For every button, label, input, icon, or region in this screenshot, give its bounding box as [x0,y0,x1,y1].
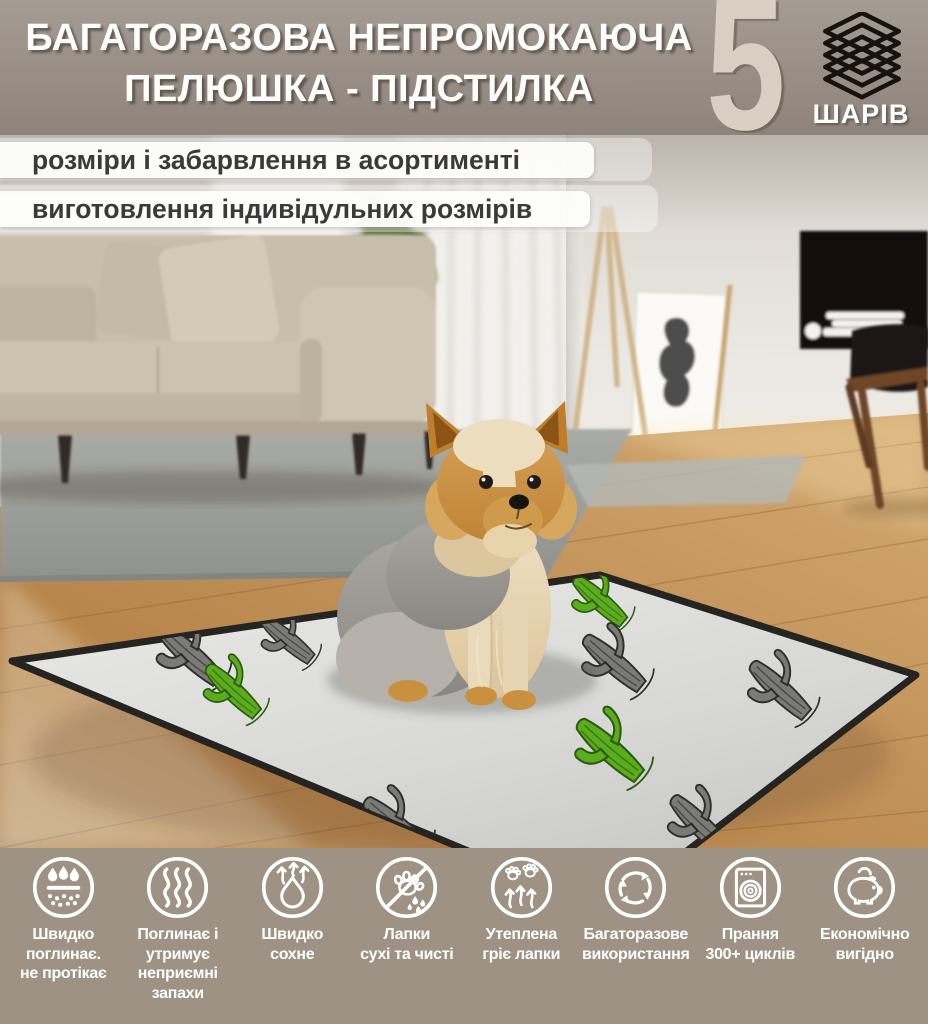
product-poster: БАГАТОРАЗОВА НЕПРОМОКАЮЧА ПЕЛЮШКА - ПІДС… [0,0,928,1024]
page-title: БАГАТОРАЗОВА НЕПРОМОКАЮЧА ПЕЛЮШКА - ПІДС… [0,13,718,115]
feature-label: Поглинає і утримує неприємні запахи [137,925,218,1003]
warm-paws-icon [489,855,554,920]
odor-waves-icon [145,855,210,920]
feature-warm-paws: Утеплена гріє лапки [464,855,579,1024]
banner-assortment: розміри і забарвлення в асортименті [0,142,594,178]
living-room-photo: розміри і забарвлення в асортименті виго… [0,135,928,848]
feature-label: Утеплена гріє лапки [482,925,560,964]
layers-label: ШАРІВ [802,99,920,130]
dog-eye [479,475,493,489]
feature-label: Швидко сохне [261,925,323,964]
feature-economy: Економічно вигідно [808,855,923,1024]
layers-count: 5 [706,0,785,135]
feature-label: Прання 300+ циклів [705,925,795,964]
scene-graphic [0,135,928,848]
pillow [157,233,281,357]
feature-dry-paws: Лапки сухі та чисті [350,855,465,1024]
banner-custom-sizes: виготовлення індивідульних розмірів [0,191,590,227]
no-wet-paws-icon [374,855,439,920]
header: БАГАТОРАЗОВА НЕПРОМОКАЮЧА ПЕЛЮШКА - ПІДС… [0,0,928,135]
washing-machine-icon [718,855,783,920]
feature-label: Лапки сухі та чисті [360,925,453,964]
title-line-1: БАГАТОРАЗОВА НЕПРОМОКАЮЧА [0,13,718,64]
five-layers-badge: 5 ШАРІВ [704,0,922,135]
feature-washing: Прання 300+ циклів [693,855,808,1024]
feature-odor: Поглинає і утримує неприємні запахи [121,855,236,1024]
title-line-2: ПЕЛЮШКА - ПІДСТИЛКА [0,64,718,115]
feature-label: Багаторазове використання [582,925,690,964]
water-drops-absorb-icon [31,855,96,920]
feature-absorb: Швидко поглинає. не протікає [6,855,121,1024]
feature-label: Швидко поглинає. не протікає [20,925,107,984]
dog-eye [527,475,541,489]
layers-stack-icon [810,12,914,100]
feature-label: Економічно вигідно [820,925,909,964]
quick-dry-drop-icon [260,855,325,920]
dog-head [425,401,577,558]
feature-quick-dry: Швидко сохне [235,855,350,1024]
dog-nose [509,495,529,510]
piggy-bank-icon [832,855,897,920]
feature-reusable: Багаторазове використання [579,855,694,1024]
reuse-cycle-icon [603,855,668,920]
features-bar: Швидко поглинає. не протікає Поглинає і … [0,848,928,1024]
